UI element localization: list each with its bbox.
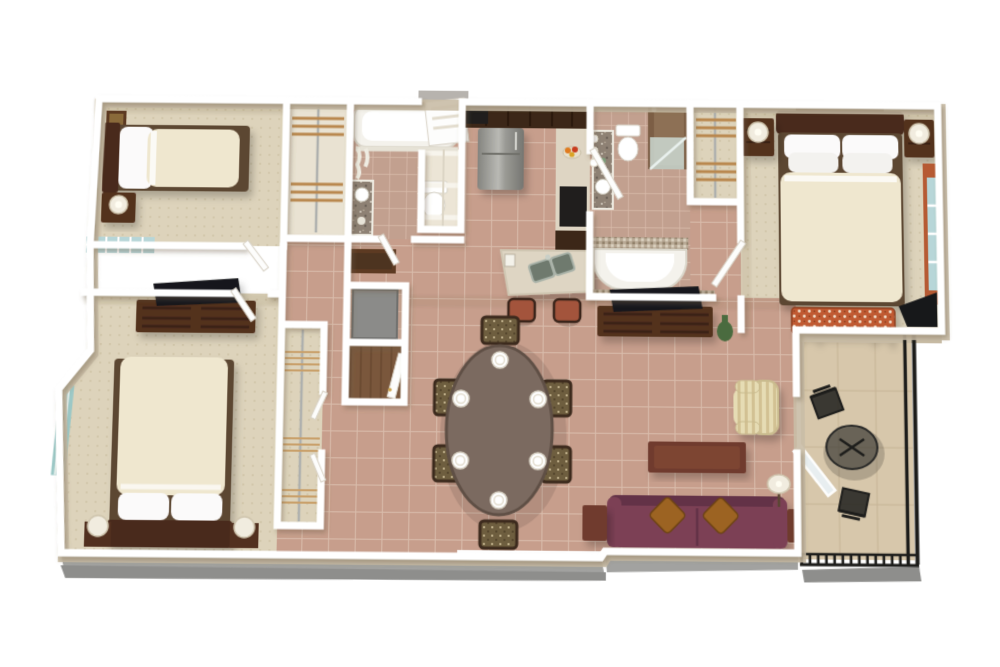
wall-oven: [559, 186, 586, 226]
refrigerator: [477, 128, 524, 190]
dining-chair: [482, 317, 519, 344]
shower-curtain-rod: [356, 149, 458, 150]
dresser-with-tv: [136, 277, 257, 333]
kitchen-island: [501, 247, 594, 295]
tub-deck: [592, 237, 689, 250]
toilet: [616, 125, 640, 161]
king-bed: [776, 110, 907, 306]
floorplan-svg: [33, 86, 972, 605]
sofa: [607, 495, 788, 549]
bar-stool: [554, 299, 580, 322]
wingback-armchair: [733, 380, 778, 434]
garden-tub: [591, 237, 688, 290]
nightstand-right: [904, 120, 935, 158]
plan-perspective-wrapper: [33, 86, 972, 605]
bottles: [505, 254, 515, 266]
walk-in-shower: [648, 105, 688, 169]
floorplan-render: [0, 0, 1000, 667]
ball-lamp: [87, 515, 108, 536]
queen-bed: [106, 357, 236, 548]
fruit-bowl: [563, 146, 581, 158]
ball-lamp: [234, 517, 255, 538]
dining-chair: [480, 521, 517, 548]
water-heater: [352, 289, 397, 338]
nightstand-with-lamp: [101, 192, 136, 222]
oval-table: [445, 345, 552, 515]
coffee-table: [648, 441, 746, 473]
vanity: [350, 181, 373, 235]
twin-bed: [102, 123, 250, 194]
end-table-left: [582, 505, 607, 541]
nightstand-left: [742, 118, 774, 156]
